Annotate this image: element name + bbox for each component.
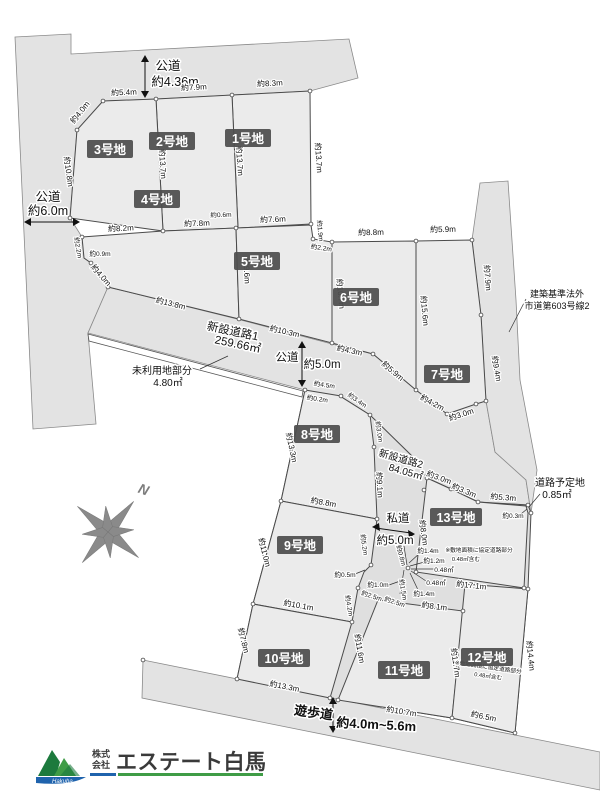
lot-2-area xyxy=(156,95,238,231)
compass-north-label: N xyxy=(136,480,152,499)
svg-text:約5.4m: 約5.4m xyxy=(111,87,137,98)
svg-text:約8.3m: 約8.3m xyxy=(257,77,284,88)
svg-text:会社: 会社 xyxy=(92,759,110,770)
svg-text:約1.0m: 約1.0m xyxy=(367,580,389,589)
lot-7-area xyxy=(416,240,486,414)
svg-text:11号地: 11号地 xyxy=(385,663,424,678)
planned-road-area: 0.85㎡ xyxy=(542,489,571,501)
company-logo: Hakuba 株式 会社 エステート白馬 xyxy=(36,748,267,785)
svg-text:約7.9m: 約7.9m xyxy=(181,81,208,92)
svg-text:0.48㎡: 0.48㎡ xyxy=(426,578,446,587)
lot-7-badge: 7号地 xyxy=(424,365,470,383)
city-road-note-1: 建築基準法外 xyxy=(530,288,584,299)
svg-text:約1.4m: 約1.4m xyxy=(413,589,435,598)
svg-text:1号地: 1号地 xyxy=(232,131,264,146)
svg-text:約5.9m: 約5.9m xyxy=(430,224,456,234)
lot-1-badge: 1号地 xyxy=(225,129,271,147)
lot-10-badge: 10号地 xyxy=(258,649,310,667)
lot-12-badge: 12号地 xyxy=(461,648,513,666)
lot-4-badge: 4号地 xyxy=(134,190,180,208)
svg-text:約14.4m: 約14.4m xyxy=(524,640,537,671)
svg-text:約13.7m: 約13.7m xyxy=(313,142,325,173)
svg-text:株式: 株式 xyxy=(92,748,110,759)
svg-text:※敷地面積に協定道路部分: ※敷地面積に協定道路部分 xyxy=(445,546,513,554)
lot-2-badge: 2号地 xyxy=(149,132,195,150)
svg-text:約1.2m: 約1.2m xyxy=(423,556,445,565)
svg-text:8号地: 8号地 xyxy=(301,427,333,442)
svg-text:約8.2m: 約8.2m xyxy=(108,222,135,233)
lot-6-badge: 6号地 xyxy=(333,288,379,306)
svg-text:約1.9m: 約1.9m xyxy=(315,220,326,242)
top-road-name: 公道 xyxy=(155,59,181,73)
svg-text:Hakuba: Hakuba xyxy=(52,779,73,785)
svg-text:約8.8m: 約8.8m xyxy=(358,227,384,237)
svg-text:約0.5m: 約0.5m xyxy=(334,570,356,579)
svg-text:約7.6m: 約7.6m xyxy=(260,214,286,225)
svg-text:0.48㎡含む: 0.48㎡含む xyxy=(452,555,480,563)
svg-text:7号地: 7号地 xyxy=(431,367,463,382)
svg-text:約1.4m: 約1.4m xyxy=(417,546,439,555)
svg-text:約7.8m: 約7.8m xyxy=(184,218,210,229)
private-road-width: 約5.0m xyxy=(376,533,413,547)
svg-text:10号地: 10号地 xyxy=(265,651,304,666)
left-road-name: 公道 xyxy=(35,190,61,204)
lot-5-badge: 5号地 xyxy=(234,252,280,270)
svg-text:約0.9m: 約0.9m xyxy=(89,249,111,258)
svg-text:4号地: 4号地 xyxy=(141,192,173,207)
svg-text:2号地: 2号地 xyxy=(156,134,188,149)
unused-land-area: 4.80㎡ xyxy=(153,377,182,389)
logo-company-name: エステート白馬 xyxy=(116,750,267,774)
center-road-width: 約5.0m xyxy=(303,357,340,371)
svg-text:0.48㎡: 0.48㎡ xyxy=(434,565,454,574)
land-plot-map: 公道 約4.36m 公道 約6.0m 新設道路1 259.66㎡ 公道 約5.0… xyxy=(0,0,600,800)
private-road-name: 私道 xyxy=(387,511,410,525)
lot-9-badge: 9号地 xyxy=(277,536,323,554)
lot-13-badge: 13号地 xyxy=(430,508,482,526)
svg-text:6号地: 6号地 xyxy=(340,290,372,305)
center-road-name: 公道 xyxy=(276,350,299,364)
svg-text:12号地: 12号地 xyxy=(468,650,507,665)
left-road-width: 約6.0m xyxy=(28,203,68,218)
city-road-note-2: 市道第603号線2 xyxy=(524,300,589,311)
svg-text:約0.3m: 約0.3m xyxy=(502,511,524,520)
lot-8-badge: 8号地 xyxy=(294,425,340,443)
svg-text:9号地: 9号地 xyxy=(284,538,316,553)
planned-road-name: 道路予定地 xyxy=(535,476,585,489)
svg-text:13号地: 13号地 xyxy=(437,510,476,525)
unused-land-name: 未利用地部分 xyxy=(132,364,192,377)
svg-text:5号地: 5号地 xyxy=(241,254,273,269)
lot-3-badge: 3号地 xyxy=(87,140,133,158)
svg-text:約9.1m: 約9.1m xyxy=(374,472,385,499)
lot-11-badge: 11号地 xyxy=(378,661,430,679)
svg-text:3号地: 3号地 xyxy=(94,142,126,157)
